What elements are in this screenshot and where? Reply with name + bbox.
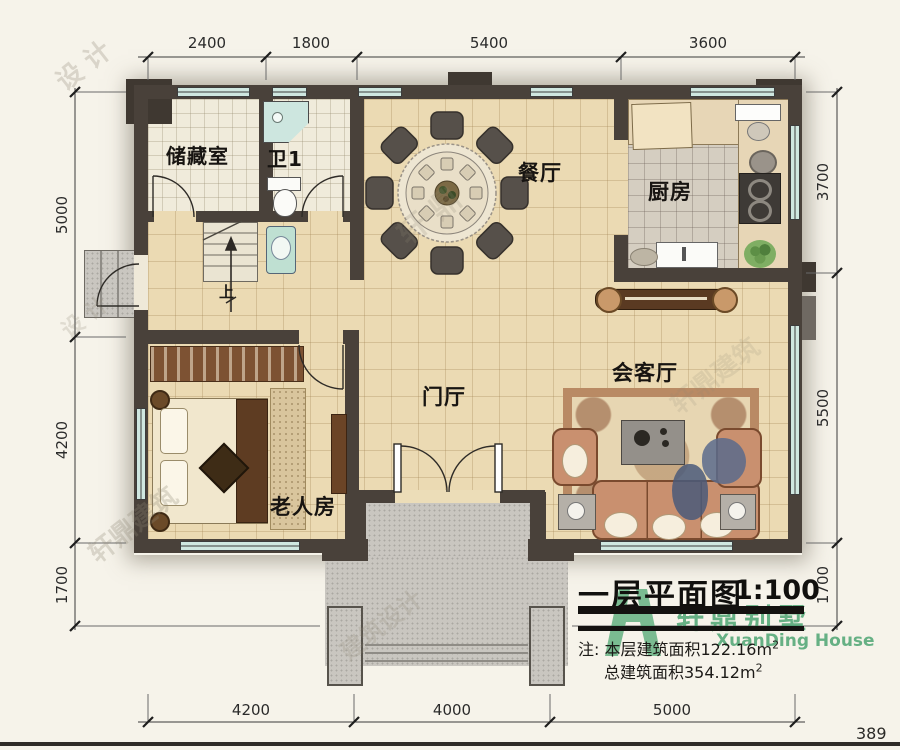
title-underline-2 — [578, 626, 804, 631]
dim-right-2: 5500 — [814, 389, 832, 427]
dim-left-3: 1700 — [53, 566, 71, 604]
stairs-up-label: 上 — [219, 281, 234, 302]
note-prefix: 注: — [578, 640, 599, 659]
dim-top-4: 3600 — [689, 34, 727, 52]
dim-bottom-2: 4000 — [433, 701, 471, 719]
room-label-bedroom: 老人房 — [270, 491, 336, 521]
bottom-border — [0, 742, 900, 746]
stairs-break-line — [203, 221, 242, 240]
dim-left-1: 5000 — [53, 196, 71, 234]
room-label-storage: 储藏室 — [166, 140, 229, 169]
room-label-bath: 卫1 — [267, 143, 303, 172]
area-note-2: 总建筑面积354.12m2 — [604, 659, 763, 683]
page-number: 389 — [856, 724, 887, 743]
door-storage — [153, 176, 194, 217]
note1-text: 本层建筑面积122.16m — [605, 640, 773, 659]
dim-left-2: 4200 — [53, 421, 71, 459]
dim-bottom-1: 4200 — [232, 701, 270, 719]
dim-right-1: 3700 — [814, 163, 832, 201]
dim-bottom-3: 5000 — [653, 701, 691, 719]
door-bedroom — [299, 345, 343, 389]
dim-top-3: 5400 — [470, 34, 508, 52]
area-note-1: 注: 本层建筑面积122.16m2 — [578, 636, 779, 660]
room-label-kitchen: 厨房 — [648, 176, 692, 206]
dim-top-1: 2400 — [188, 34, 226, 52]
door-bath — [302, 176, 343, 217]
door-entry-double — [394, 444, 502, 492]
note1-sup: 2 — [772, 639, 779, 652]
note2-text: 总建筑面积354.12m — [604, 663, 756, 682]
title-underline-1 — [578, 606, 804, 614]
dim-top-2: 1800 — [292, 34, 330, 52]
room-label-living: 会客厅 — [612, 357, 678, 387]
floor-plan-page: 2400 1800 5400 3600 4200 4000 5000 5000 … — [0, 0, 900, 750]
room-label-dining: 餐厅 — [518, 157, 562, 187]
room-label-hall: 门厅 — [422, 381, 466, 411]
plan-scale: 1:100 — [734, 575, 820, 606]
note2-sup: 2 — [756, 662, 763, 675]
